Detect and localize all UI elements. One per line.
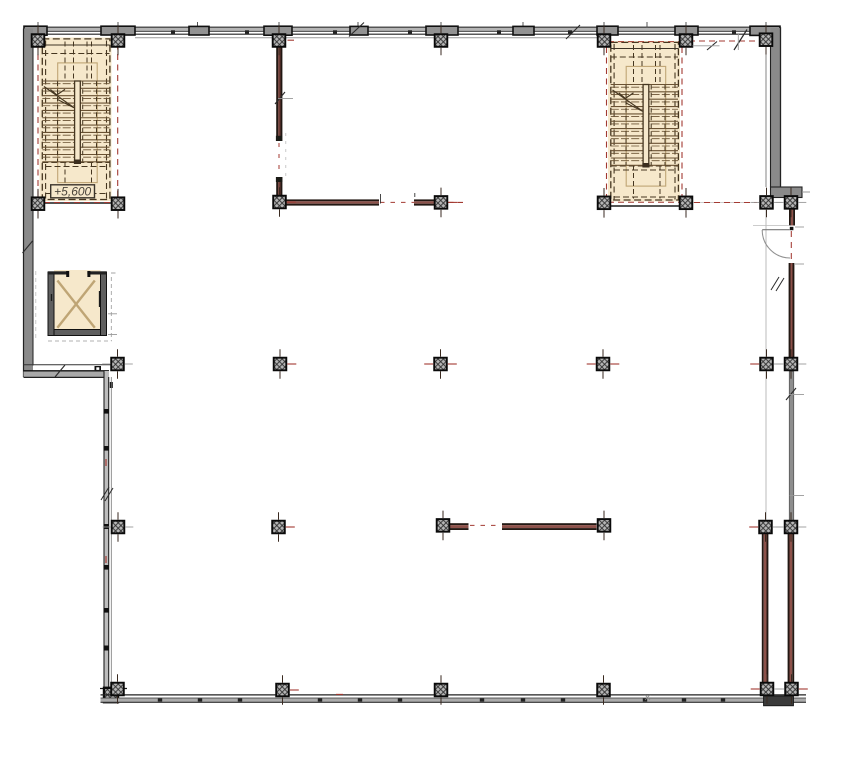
svg-text:+5,600: +5,600 [54, 185, 91, 199]
